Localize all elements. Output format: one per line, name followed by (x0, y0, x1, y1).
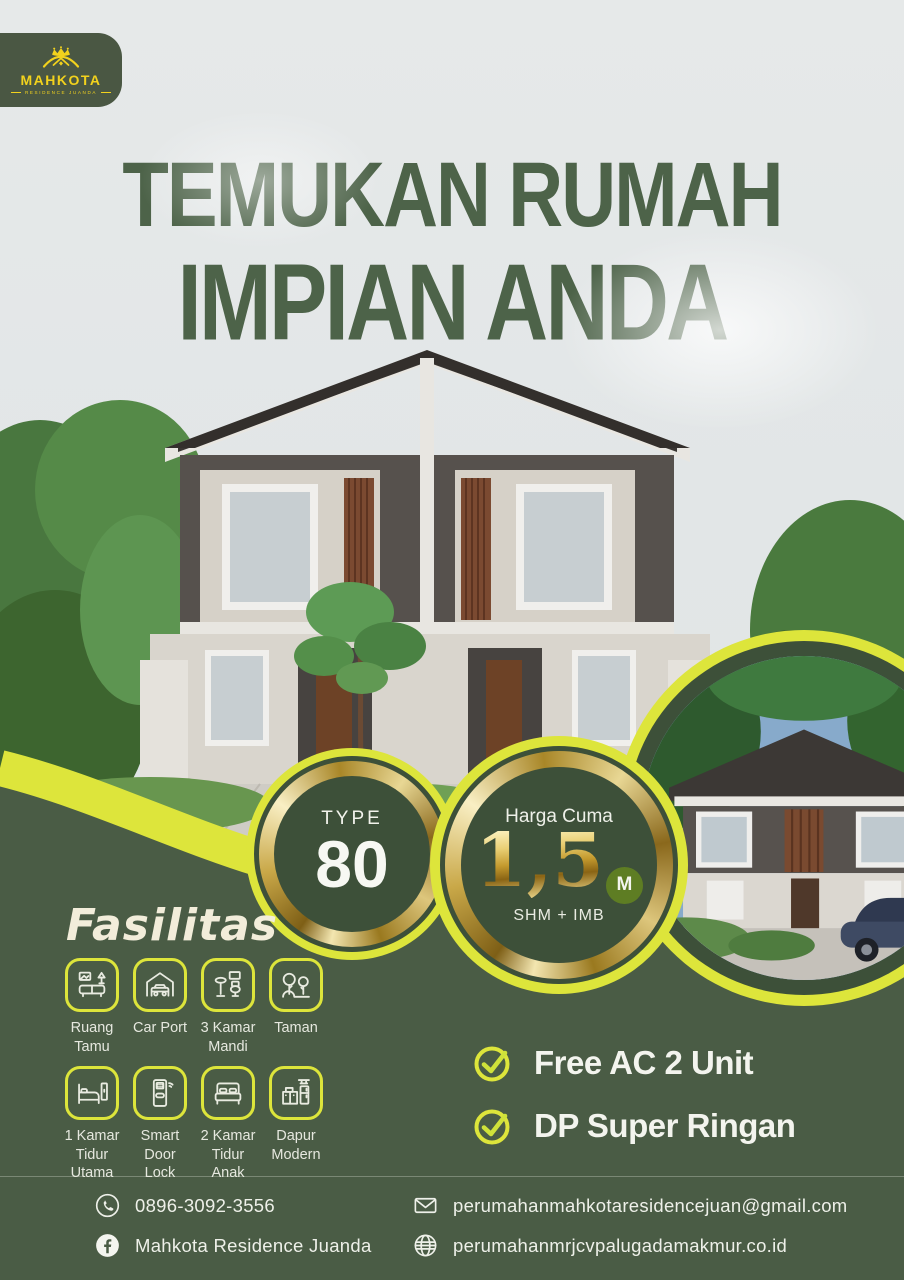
brand-logo: MAHKOTA RESIDENCE JUANDA (0, 33, 122, 107)
price-note: SHM + IMB (513, 907, 604, 925)
check-icon (470, 1103, 516, 1149)
price-unit: M (606, 867, 643, 904)
carport-icon (142, 967, 178, 1003)
phone-icon (94, 1192, 121, 1219)
contact-facebook[interactable]: Mahkota Residence Juanda (94, 1232, 372, 1259)
facilities-heading: Fasilitas (66, 900, 278, 951)
envelope-icon (412, 1192, 439, 1219)
garden-icon (278, 967, 314, 1003)
hero-title-line-1: TEMUKAN RUMAH (23, 142, 882, 248)
brand-name: MAHKOTA (20, 73, 101, 87)
facility-kamar-tidur-utama: 1 Kamar Tidur Utama (61, 1066, 123, 1183)
contact-email[interactable]: perumahanmahkotaresidencejuan@gmail.com (412, 1192, 848, 1219)
contact-right-column: perumahanmahkotaresidencejuan@gmail.com … (412, 1192, 848, 1259)
kids-bedroom-icon (210, 1075, 246, 1111)
benefit-free-ac: Free AC 2 Unit (470, 1040, 795, 1086)
smart-door-lock-icon (142, 1075, 178, 1111)
contact-website[interactable]: perumahanmrjcvpalugadamakmur.co.id (412, 1232, 848, 1259)
contact-phone[interactable]: 0896-3092-3556 (94, 1192, 372, 1219)
website-address: perumahanmrjcvpalugadamakmur.co.id (453, 1235, 787, 1257)
email-address: perumahanmahkotaresidencejuan@gmail.com (453, 1195, 848, 1217)
hero-title-line-2: IMPIAN ANDA (45, 240, 859, 365)
facebook-name: Mahkota Residence Juanda (135, 1235, 372, 1257)
check-icon (470, 1040, 516, 1086)
contact-left-column: 0896-3092-3556 Mahkota Residence Juanda (94, 1192, 372, 1259)
bathroom-icon (210, 967, 246, 1003)
benefit-dp-ringan: DP Super Ringan (470, 1103, 795, 1149)
facility-dapur-modern: Dapur Modern (265, 1066, 327, 1183)
phone-number: 0896-3092-3556 (135, 1195, 275, 1217)
brand-tagline: RESIDENCE JUANDA (11, 90, 111, 95)
globe-icon (412, 1232, 439, 1259)
facility-ruang-tamu: Ruang Tamu (61, 958, 123, 1056)
price-value: 1,5 (475, 824, 604, 898)
sofa-icon (74, 967, 110, 1003)
facility-taman: Taman (265, 958, 327, 1056)
poster: MAHKOTA RESIDENCE JUANDA TEMUKAN RUMAH I… (0, 0, 904, 1280)
facebook-icon (94, 1232, 121, 1259)
facility-kamar-tidur-anak: 2 Kamar Tidur Anak (197, 1066, 259, 1183)
type-value: 80 (315, 830, 388, 899)
master-bedroom-icon (74, 1075, 110, 1111)
facility-smart-door-lock: Smart Door Lock (129, 1066, 191, 1183)
house-photo-inset (642, 656, 904, 980)
footer-divider (0, 1176, 904, 1177)
facility-kamar-mandi: 3 Kamar Mandi (197, 958, 259, 1056)
price-badge: Harga Cuma 1,5 M SHM + IMB (430, 736, 688, 994)
benefits-list: Free AC 2 Unit DP Super Ringan (470, 1040, 795, 1149)
crown-roof-icon (32, 45, 90, 71)
facilities-grid: Ruang Tamu Car Port 3 Kamar Mandi (58, 958, 330, 1183)
facility-car-port: Car Port (129, 958, 191, 1056)
kitchen-icon (278, 1075, 314, 1111)
